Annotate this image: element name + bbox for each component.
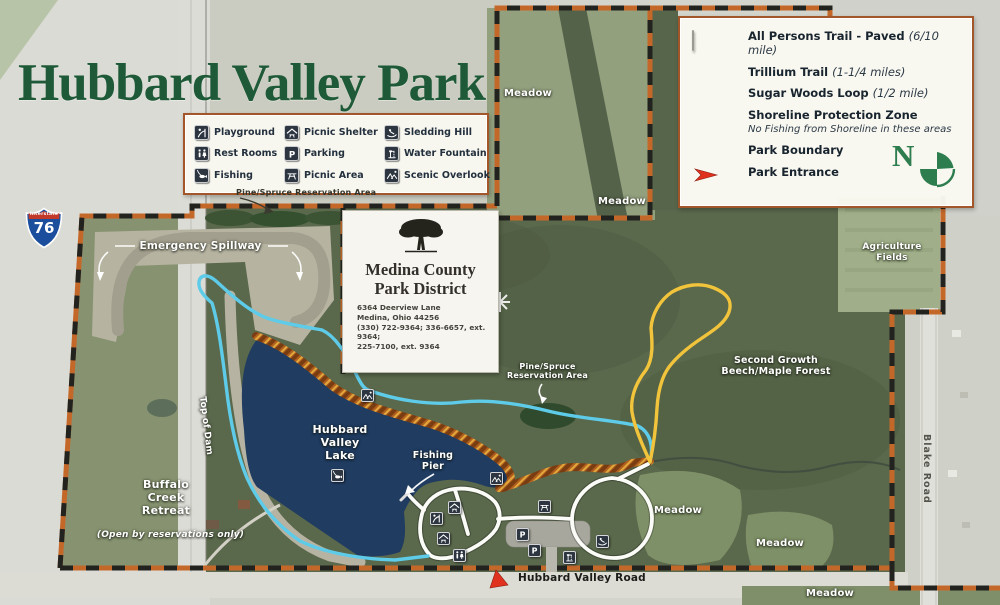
legend-row-all-persons-trail: All Persons Trail - Paved (6/10 mile)	[692, 30, 960, 58]
scenic-overlook-icon	[490, 472, 503, 485]
legend-item-water-fountain: Water Fountain	[384, 144, 496, 163]
legend-label: Picnic Area	[304, 170, 364, 181]
pine-spruce-reservation-label-top: Pine/Spruce Reservation Area	[236, 188, 396, 197]
fishing-icon	[194, 168, 209, 183]
all-persons-trail-swatch	[692, 30, 694, 51]
picnic-shelter-icon	[448, 501, 461, 514]
legend-item-playground: Playground	[194, 123, 282, 142]
address-line: Medina, Ohio 44256	[357, 313, 494, 323]
facilities-legend: Playground Picnic Shelter Sledding Hill …	[183, 113, 489, 195]
buffalo-creek-retreat-label: Buffalo Creek Retreat	[135, 479, 197, 518]
trail-label: Shoreline Protection Zone	[748, 108, 918, 122]
address-line: 6364 Deerview Lane	[357, 303, 494, 313]
picnic-area-icon	[284, 168, 299, 183]
shield-system-text: Interstate	[24, 212, 64, 217]
picnic-area-icon	[538, 500, 551, 513]
playground-icon	[194, 125, 209, 140]
trail-detail: (1/2 mile)	[873, 86, 929, 100]
parking-icon	[528, 544, 541, 557]
fishing-icon	[331, 469, 344, 482]
buffalo-creek-note-label: (Open by reservations only)	[88, 530, 253, 541]
park-map-page: P	[0, 0, 1000, 605]
legend-item-picnic-area: Picnic Area	[284, 166, 382, 185]
hubbard-valley-road-label: Hubbard Valley Road	[518, 572, 678, 584]
park-district-name-line2: Park District	[343, 280, 498, 298]
legend-row-trillium-trail: Trillium Trail (1-1/4 miles)	[692, 66, 960, 80]
legend-item-rest-rooms: Rest Rooms	[194, 144, 282, 163]
park-entrance-icon	[692, 167, 738, 187]
phone-line: 225-7100, ext. 9364	[357, 342, 494, 352]
shield-route-number: 76	[24, 219, 64, 237]
hubbard-valley-lake-label: Hubbard Valley Lake	[308, 424, 372, 463]
legend-label: Parking	[304, 148, 345, 159]
meadow-label: Meadow	[498, 88, 558, 100]
agriculture-fields-label: Agriculture Fields	[852, 242, 932, 263]
scenic-overlook-icon	[361, 389, 374, 402]
park-district-box: Medina County Park District 6364 Deervie…	[342, 210, 499, 373]
meadow-label: Meadow	[800, 588, 860, 600]
compass-letter: N	[892, 138, 914, 174]
trail-label: Park Entrance	[748, 166, 839, 180]
second-growth-forest-label: Second Growth Beech/Maple Forest	[720, 355, 832, 377]
blake-road-label: Blake Road	[921, 434, 932, 504]
pine-spruce-reservation-label-mid: Pine/Spruce Reservation Area	[505, 362, 590, 381]
legend-row-sugar-woods-loop: Sugar Woods Loop (1/2 mile)	[692, 87, 960, 101]
fishing-pier-label: Fishing Pier	[408, 450, 458, 472]
legend-item-scenic-overlook: Scenic Overlook	[384, 166, 496, 185]
phone-line: (330) 722-9364; 336-6657, ext. 9364;	[357, 323, 494, 343]
meadow-label: Meadow	[592, 196, 652, 208]
parking-icon	[284, 146, 299, 161]
legend-item-picnic-shelter: Picnic Shelter	[284, 123, 382, 142]
legend-label: Picnic Shelter	[304, 127, 378, 138]
legend-label: Fishing	[214, 170, 253, 181]
water-fountain-icon	[563, 551, 576, 564]
legend-item-fishing: Fishing	[194, 166, 282, 185]
trail-detail: (1-1/4 miles)	[832, 65, 905, 79]
parking-icon	[516, 528, 529, 541]
playground-icon	[430, 512, 443, 525]
meadow-label: Meadow	[750, 538, 810, 550]
rest-rooms-icon	[194, 146, 209, 161]
meadow-label: Meadow	[648, 505, 708, 517]
interstate-76-shield: Interstate 76	[24, 206, 64, 250]
water-fountain-icon	[384, 146, 399, 161]
legend-item-parking: Parking	[284, 144, 382, 163]
legend-label: Playground	[214, 127, 275, 138]
rest-rooms-icon	[453, 549, 466, 562]
picnic-shelter-icon	[437, 532, 450, 545]
legend-label: Rest Rooms	[214, 148, 277, 159]
tree-logo-icon	[397, 216, 445, 256]
page-title: Hubbard Valley Park	[18, 58, 498, 109]
legend-label: Sledding Hill	[404, 127, 472, 138]
park-district-name-line1: Medina County	[343, 261, 498, 279]
legend-label: Scenic Overlook	[404, 170, 490, 181]
sledding-hill-icon	[596, 535, 609, 548]
legend-item-sledding-hill: Sledding Hill	[384, 123, 496, 142]
legend-row-shoreline-zone: Shoreline Protection Zone No Fishing fro…	[692, 109, 960, 136]
emergency-spillway-label: Emergency Spillway	[138, 240, 263, 252]
north-arrow-icon: N	[892, 138, 956, 194]
trail-legend: All Persons Trail - Paved (6/10 mile) Tr…	[678, 16, 974, 208]
trail-label: Sugar Woods Loop	[748, 86, 869, 100]
sledding-hill-icon	[384, 125, 399, 140]
shoreline-zone-note: No Fishing from Shoreline in these areas	[748, 124, 951, 136]
picnic-shelter-icon	[284, 125, 299, 140]
trail-label: Trillium Trail	[748, 65, 828, 79]
scenic-overlook-icon	[384, 168, 399, 183]
trail-label: All Persons Trail - Paved	[748, 29, 905, 43]
legend-label: Water Fountain	[404, 148, 487, 159]
trail-label: Park Boundary	[748, 144, 843, 158]
